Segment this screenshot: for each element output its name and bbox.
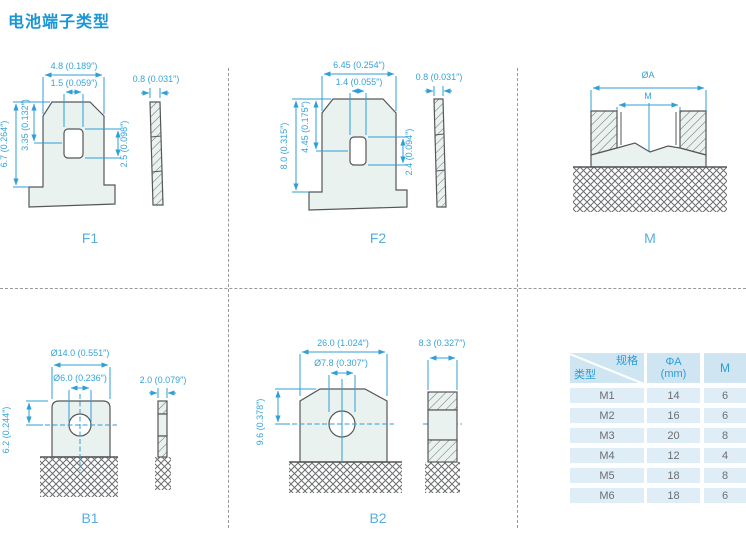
b1-side-base [155, 457, 171, 490]
header-cell-m: M [704, 353, 746, 383]
f2-slot-width-dim: 1.4 (0.055″) [336, 77, 383, 87]
header-type-label: 类型 [574, 369, 596, 381]
table-row: M5 18 8 [570, 468, 746, 483]
b2-label: B2 [298, 510, 458, 528]
b1-width-dim: Ø14.0 (0.551″) [51, 348, 110, 358]
f2-height-dim: 8.0 (0.315″) [279, 123, 289, 170]
f1-half-height-dim: 3.35 (0.132″) [20, 99, 30, 151]
f2-width-dim: 6.45 (0.254″) [333, 60, 385, 70]
table-row: M3 20 8 [570, 428, 746, 443]
f2-thickness-dim: 0.8 (0.031″) [416, 72, 463, 82]
b2-side-mid [428, 410, 457, 440]
f2-drawing: 6.45 (0.254″) 1.4 (0.055″) 8.0 (0.315″) … [228, 55, 478, 225]
spec-table-header: 规格 类型 ΦA (mm) M [570, 353, 746, 383]
f1-label: F1 [10, 230, 170, 248]
b1-hole-dim: Ø6.0 (0.236″) [53, 373, 107, 383]
b1-label: B1 [10, 510, 170, 528]
f1-slot-height-dim: 2.5 (0.098″) [119, 121, 129, 168]
battery-terminal-types-page: 电池端子类型 [0, 0, 746, 534]
page-title: 电池端子类型 [8, 8, 110, 32]
f2-label: F2 [298, 230, 458, 248]
f1-width-dim: 4.8 (0.189″) [51, 61, 98, 71]
table-row: M6 18 6 [570, 488, 746, 503]
b2-base [289, 462, 402, 493]
f1-drawing: 4.8 (0.189″) 1.5 (0.059″) 6.7 (0.264″) 3… [0, 55, 185, 225]
table-row: M4 12 4 [570, 448, 746, 463]
header-cell-diameter: ΦA (mm) [647, 353, 700, 383]
f1-height-dim: 6.7 (0.264″) [0, 121, 9, 168]
b1-side-top [158, 401, 167, 414]
b2-thickness-dim: 8.3 (0.327″) [419, 338, 466, 348]
f1-side-view [150, 102, 163, 205]
f1-slot-width-dim: 1.5 (0.059″) [51, 78, 98, 88]
header-cell-type-spec: 规格 类型 [570, 353, 644, 383]
b1-drawing: Ø14.0 (0.551″) Ø6.0 (0.236″) 6.2 (0.244″… [0, 330, 200, 508]
f1-thickness-dim: 0.8 (0.031″) [133, 74, 180, 84]
b2-side-top [428, 392, 457, 410]
f2-slot-height-dim: 2.4 (0.094″) [404, 129, 414, 176]
b2-width-dim: 26.0 (1.024″) [317, 338, 369, 348]
f2-half-height-dim: 4.45 (0.175″) [300, 101, 310, 153]
m-drawing: ØA M [517, 55, 746, 225]
b1-base [40, 457, 118, 497]
f1-slot [64, 129, 83, 158]
b1-thickness-dim: 2.0 (0.079″) [140, 375, 187, 385]
m-ground [573, 167, 727, 212]
b2-hole-dim: Ø7.8 (0.307″) [314, 358, 368, 368]
m-outer-dim: ØA [641, 70, 654, 80]
b2-side-base [425, 462, 460, 493]
b1-side-mid [158, 414, 167, 436]
table-row: M2 16 6 [570, 408, 746, 423]
f2-slot [350, 137, 366, 165]
b1-side-bottom [158, 436, 167, 457]
spec-table: 规格 类型 ΦA (mm) M M1 14 6 M2 16 6 M3 20 8 … [570, 353, 746, 503]
header-spec-label: 规格 [616, 355, 638, 367]
m-thread-dim: M [644, 91, 652, 101]
m-label: M [570, 230, 730, 248]
b2-side-bottom [428, 440, 457, 462]
b2-height-dim: 9.6 (0.378″) [255, 399, 265, 446]
m-insert-right [680, 111, 706, 155]
table-row: M1 14 6 [570, 388, 746, 403]
m-insert-left [591, 111, 617, 155]
b1-height-dim: 6.2 (0.244″) [1, 407, 11, 454]
horizontal-divider [0, 288, 746, 289]
f2-side-view [434, 99, 446, 207]
b2-drawing: 26.0 (1.024″) Ø7.8 (0.307″) 9.6 (0.378″)… [228, 330, 488, 508]
